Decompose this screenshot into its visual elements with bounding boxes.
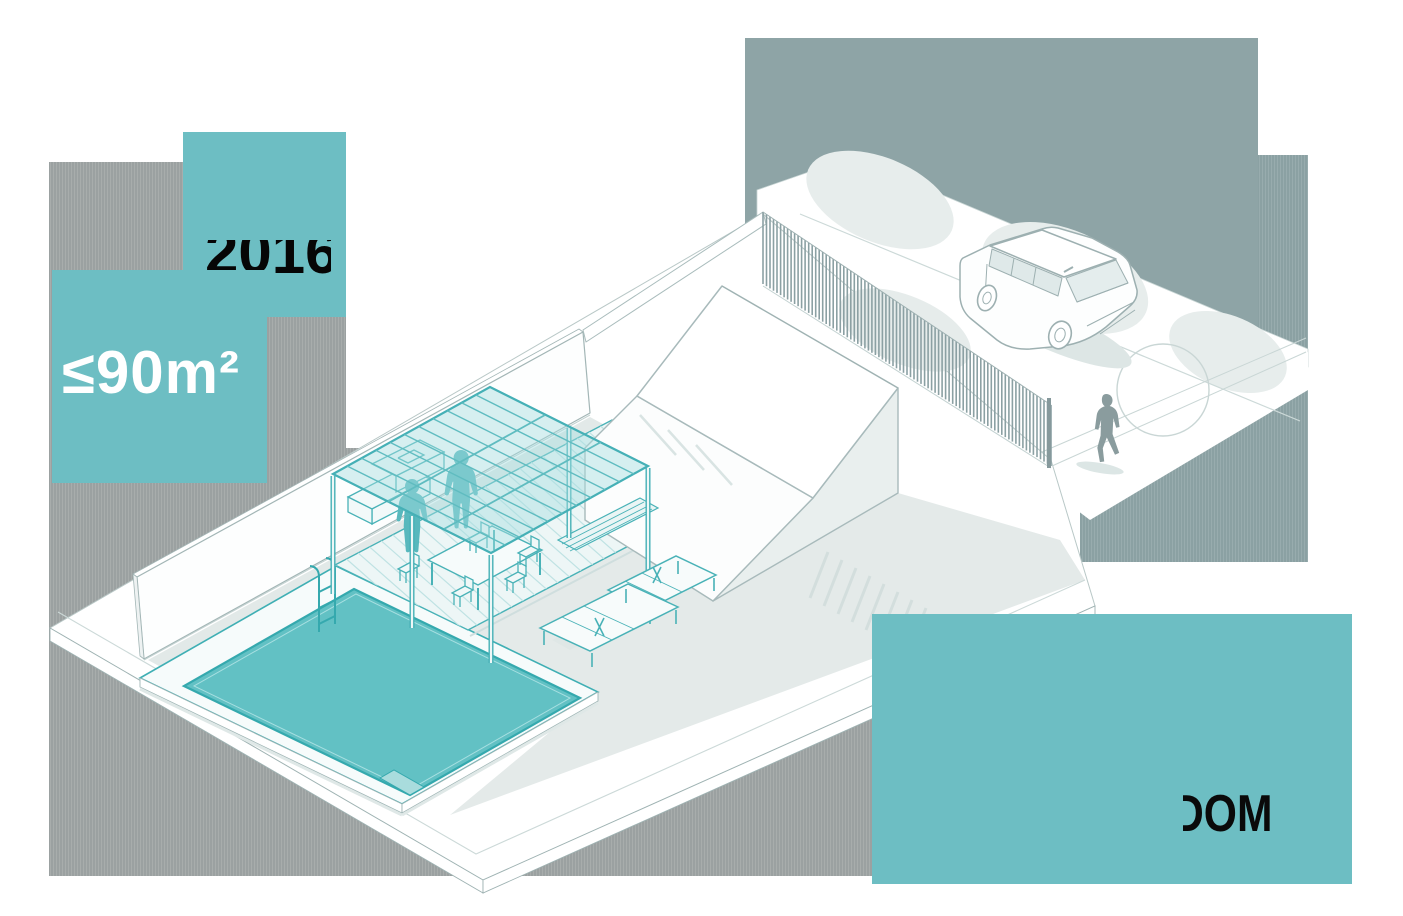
infographic-slide: 2016 ≤90m² DOM	[0, 0, 1403, 916]
dom-badge-text: DOM	[1183, 790, 1272, 840]
area-limit-text: ≤90m²	[62, 343, 240, 403]
dom-badge: DOM	[872, 614, 1352, 884]
area-limit-badge: ≤90m²	[52, 270, 267, 483]
dom-badge-clip: DOM	[1183, 790, 1297, 844]
